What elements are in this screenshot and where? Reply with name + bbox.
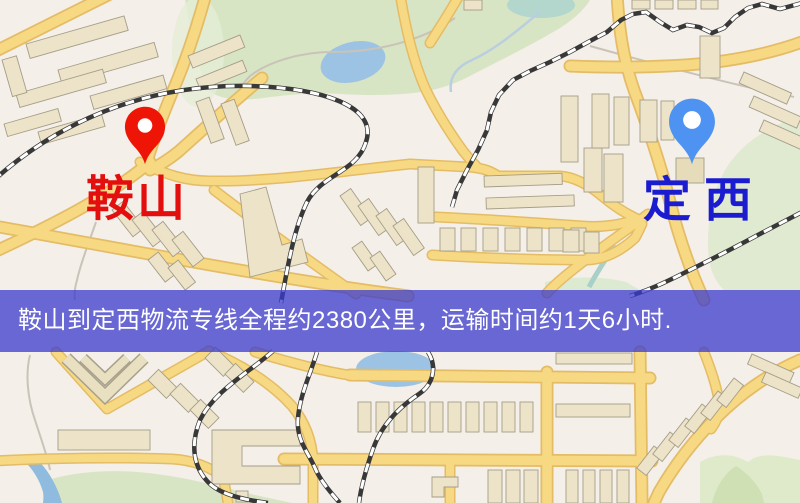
map-image[interactable] — [0, 0, 800, 503]
origin-pin-icon[interactable] — [124, 103, 166, 169]
destination-pin-icon[interactable] — [668, 97, 716, 167]
logistics-route-map: 鞍山 定西 鞍山到定西物流专线全程约2380公里，运输时间约1天6小时. — [0, 0, 800, 503]
route-info-text: 鞍山到定西物流专线全程约2380公里，运输时间约1天6小时. — [18, 309, 672, 333]
route-info-banner: 鞍山到定西物流专线全程约2380公里，运输时间约1天6小时. — [0, 290, 800, 352]
destination-city-label: 定西 — [643, 176, 765, 224]
origin-city-label: 鞍山 — [86, 175, 188, 223]
